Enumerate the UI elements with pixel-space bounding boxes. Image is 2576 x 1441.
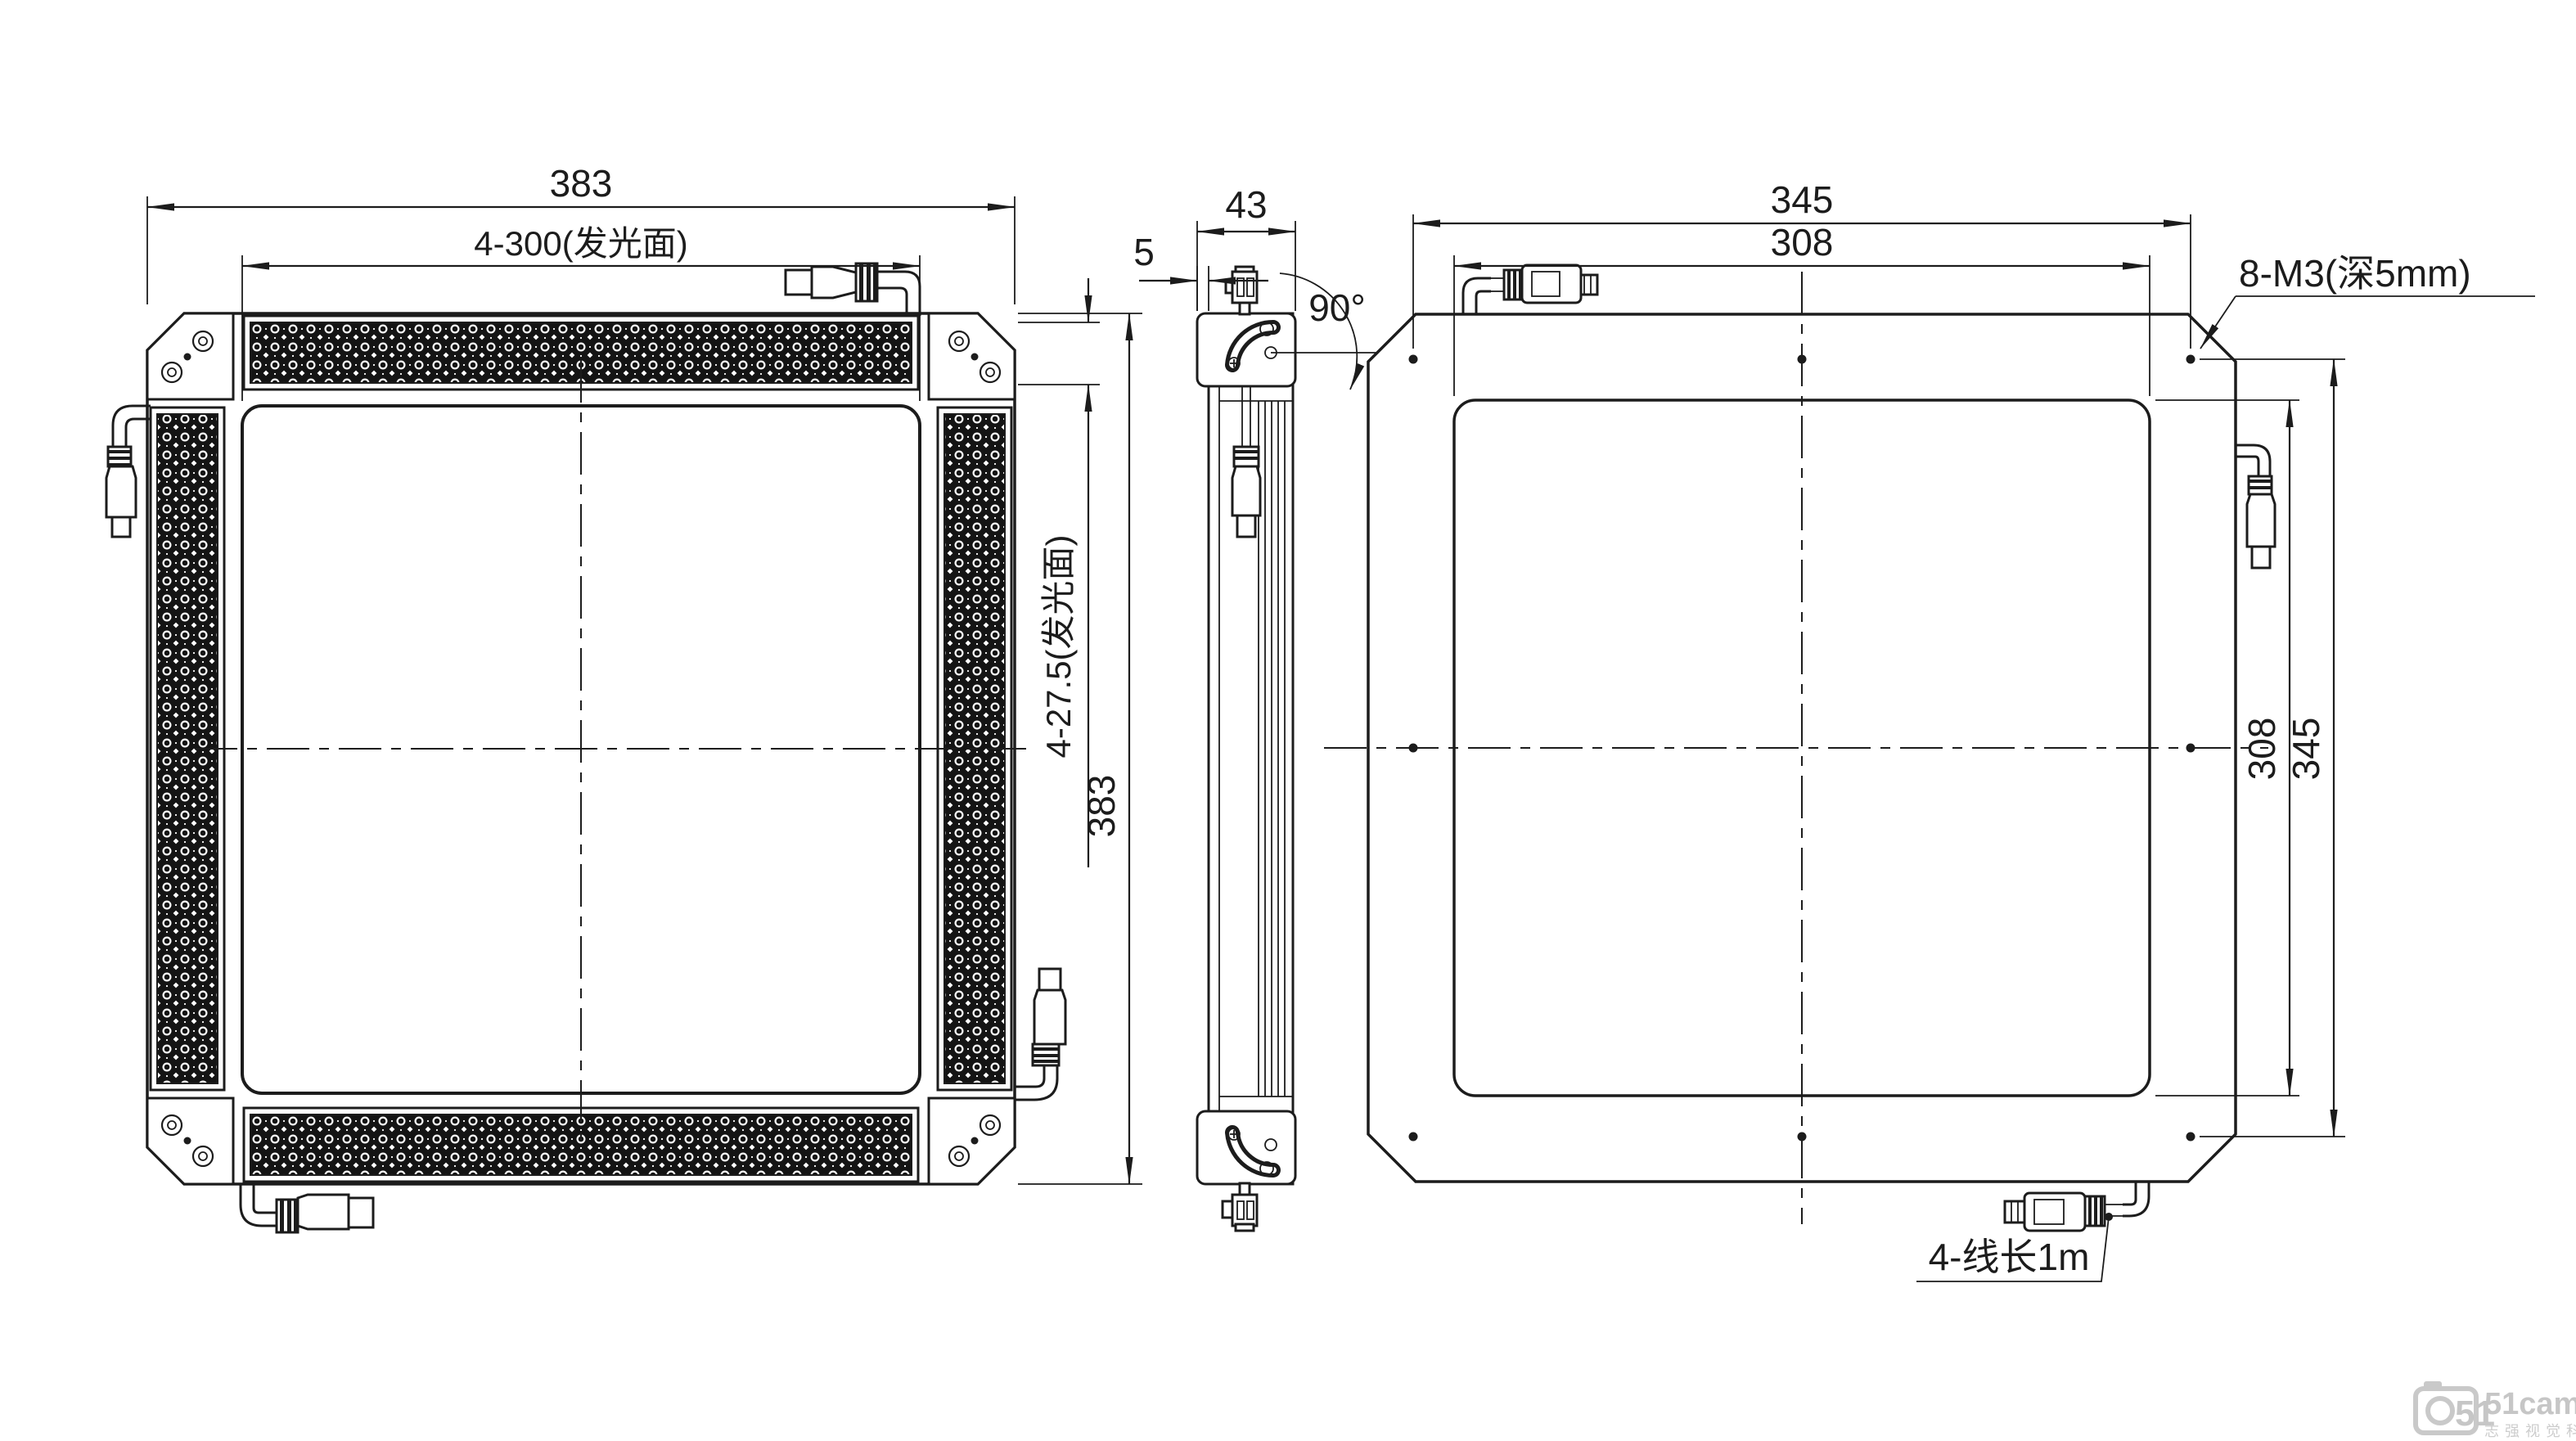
power-connector-back-right	[2236, 445, 2275, 568]
technical-drawing-page: .ol{stroke:#1c1c1c;stroke-width:3.5;fill…	[0, 0, 2576, 1441]
front-width-dimension: 383	[550, 162, 613, 205]
side-rotation-dimension: 90°	[1308, 286, 1366, 329]
watermark-tagline: 志强视觉科技	[2484, 1423, 2576, 1439]
drawing-canvas: .ol{stroke:#1c1c1c;stroke-width:3.5;fill…	[0, 0, 2576, 1441]
power-connector-bottom	[241, 1184, 373, 1232]
corner-bracket-top-left	[147, 313, 233, 399]
corner-bracket-bottom-left	[147, 1098, 233, 1184]
watermark-brand: 51camera	[2484, 1387, 2576, 1421]
front-height-dimension: 383	[1080, 775, 1123, 838]
side-depth-dimension: 43	[1225, 183, 1267, 226]
back-outer-width-dimension: 345	[1771, 178, 1834, 221]
corner-bracket-bottom-right	[929, 1098, 1015, 1184]
back-view: 345 308 308 345 8-M3(深5mm) 4-线长1m	[1324, 178, 2535, 1281]
back-inner-height-dimension: 308	[2240, 718, 2283, 781]
rj45-connector-top	[1463, 265, 1597, 314]
front-view: 383 4-300(发光面) 4-27.5(发光面) 383	[106, 162, 1142, 1232]
side-connector-top	[1226, 267, 1257, 314]
side-mount-block-top	[1197, 313, 1295, 386]
side-offset-dimension: 5	[1133, 231, 1155, 273]
power-connector-left	[106, 406, 151, 537]
side-mount-block-bottom	[1197, 1111, 1295, 1184]
power-connector-top	[786, 263, 920, 316]
back-inner-width-dimension: 308	[1771, 221, 1834, 263]
cable-length-label: 4-线长1m	[1929, 1236, 2090, 1278]
back-outer-height-dimension: 345	[2285, 718, 2327, 781]
side-connector-bottom	[1223, 1183, 1257, 1231]
watermark: 51 51camera 志强视觉科技	[2416, 1381, 2576, 1439]
screw-holes-label: 8-M3(深5mm)	[2239, 252, 2471, 295]
corner-bracket-top-right	[929, 313, 1015, 399]
power-connector-right	[1015, 969, 1065, 1100]
front-light-width-dimension: 4-300(发光面)	[474, 224, 687, 263]
rj45-connector-bottom	[2005, 1182, 2149, 1231]
front-bar-width-dimension: 4-27.5(发光面)	[1039, 534, 1078, 758]
camera-logo-icon: 51	[2416, 1381, 2495, 1434]
